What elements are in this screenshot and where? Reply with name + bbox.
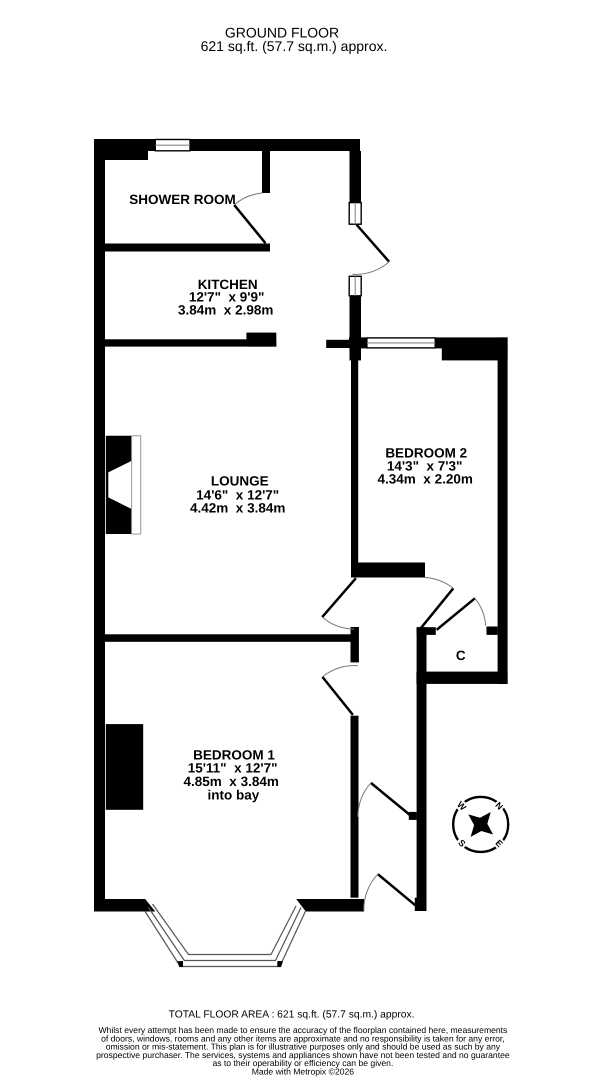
- svg-text:3.84m x 2.98m: 3.84m x 2.98m: [178, 303, 273, 318]
- svg-text:Made with Metropix ©2026: Made with Metropix ©2026: [252, 1067, 355, 1077]
- svg-text:C: C: [456, 648, 466, 663]
- svg-text:LOUNGE: LOUNGE: [211, 474, 269, 489]
- svg-text:621 sq.ft. (57.7 sq.m.) approx: 621 sq.ft. (57.7 sq.m.) approx.: [201, 38, 388, 54]
- svg-text:4.34m x 2.20m: 4.34m x 2.20m: [378, 472, 473, 487]
- svg-text:TOTAL FLOOR AREA : 621 sq.ft.: TOTAL FLOOR AREA : 621 sq.ft. (57.7 sq.m…: [169, 1010, 415, 1021]
- svg-text:4.42m x 3.84m: 4.42m x 3.84m: [190, 501, 285, 516]
- svg-text:into bay: into bay: [208, 788, 260, 803]
- svg-text:SHOWER ROOM: SHOWER ROOM: [129, 192, 236, 207]
